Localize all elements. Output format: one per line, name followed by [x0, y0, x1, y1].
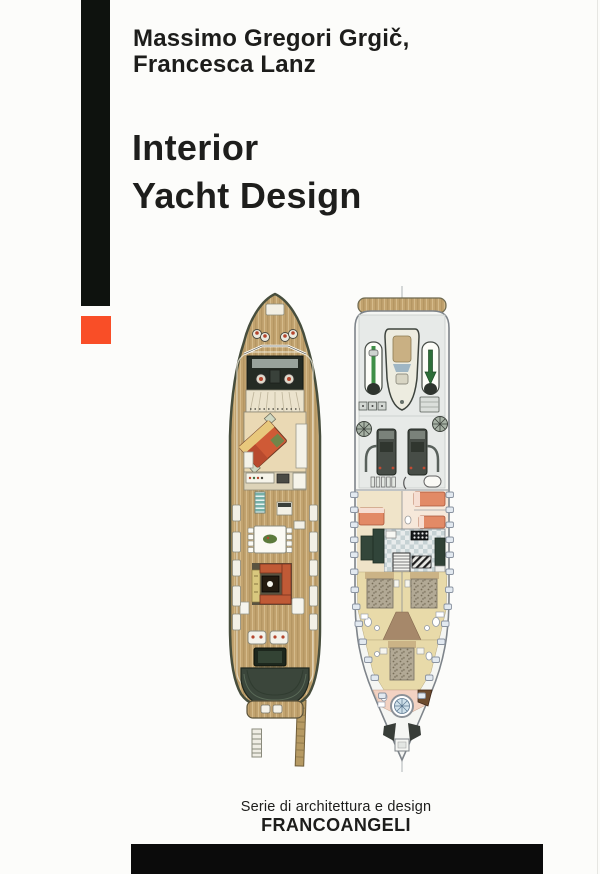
yacht-deck-plans-figure	[0, 0, 600, 874]
main-deck-plan	[230, 294, 320, 766]
lower-deck-plan	[351, 286, 454, 772]
publisher-block: Serie di architettura e design FRANCOANG…	[136, 799, 536, 836]
series-label: Serie di architettura e design	[136, 799, 536, 815]
publisher-logo: FRANCOANGELI	[136, 815, 536, 836]
footer-bar	[131, 844, 543, 874]
scan-edge-line	[597, 0, 598, 874]
book-cover: Massimo Gregori Grgič, Francesca Lanz In…	[0, 0, 600, 874]
